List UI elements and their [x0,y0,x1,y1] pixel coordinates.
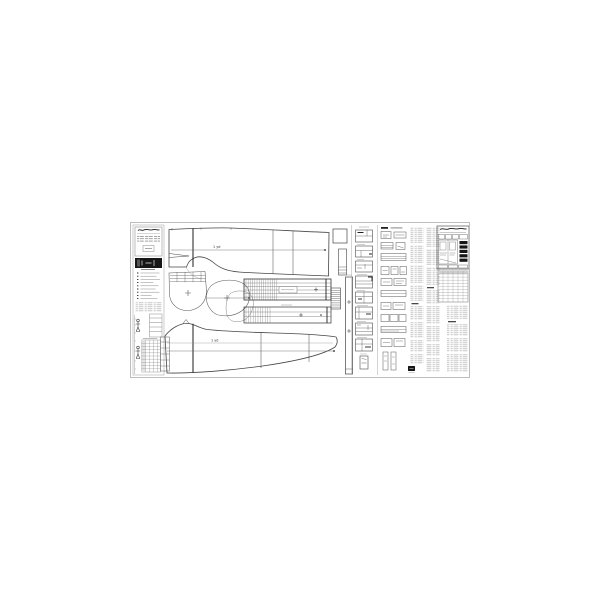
script-logo-icon [440,228,467,229]
photo-thumbnail [135,258,162,268]
ladder-piece [331,288,341,309]
small-part [356,291,373,304]
belt-loop-strip [161,337,170,371]
small-part [356,260,373,273]
sheet-drawing: 1 yd [131,223,469,377]
title-block-left [133,225,164,375]
narrow-vertical-piece [339,249,347,275]
pattern-piece-front: 1 yd [169,228,329,276]
small-part [360,354,368,369]
square-piece [333,229,347,243]
small-part [356,275,373,289]
size-table [438,271,468,302]
pattern-piece-back: 1 yd [165,320,337,374]
back-yardage-label: 1 yd [211,339,218,343]
instruction-diagram-column [381,227,407,370]
title-block-right [437,226,469,269]
measurement-table [142,339,161,373]
instruction-text-columns [411,227,469,372]
small-part [356,338,373,352]
small-parts-column [352,225,378,375]
small-part [356,322,373,336]
figure-icon [136,319,140,331]
script-logo-icon [138,229,160,230]
waistband-piece-1 [244,279,331,300]
photo-background: 1 yd [0,0,600,600]
parts-legend [137,270,160,299]
small-part [356,306,373,320]
waistband-piece-2 [244,305,331,323]
pattern-piece-pocket-cluster [169,267,253,322]
fabric-swatches [460,241,468,262]
pattern-sheet: 1 yd [130,222,470,378]
stamp-logo-icon [408,366,415,373]
strip-piece [150,314,163,337]
small-part [356,230,373,242]
front-yardage-label: 1 yd [213,245,220,249]
figure-icon [136,346,140,358]
small-part [356,245,373,258]
